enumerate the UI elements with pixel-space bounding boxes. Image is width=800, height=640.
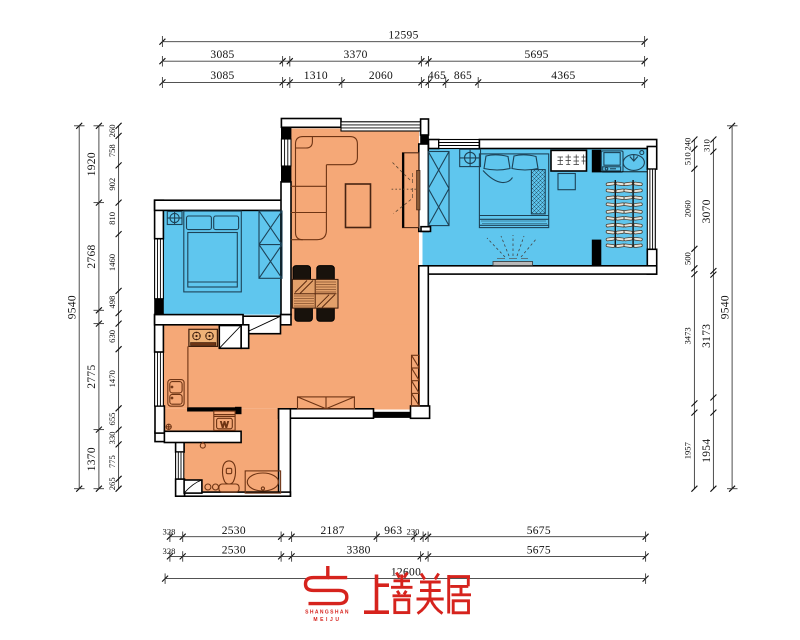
svg-text:810: 810: [107, 212, 117, 225]
svg-text:1957: 1957: [682, 441, 692, 459]
svg-text:2768: 2768: [86, 244, 98, 268]
svg-text:9540: 9540: [67, 295, 79, 319]
svg-text:328: 328: [163, 546, 176, 556]
svg-text:500: 500: [682, 252, 692, 265]
svg-text:775: 775: [107, 455, 117, 468]
svg-text:1310: 1310: [304, 70, 328, 82]
svg-text:2060: 2060: [682, 200, 692, 217]
svg-text:1370: 1370: [86, 447, 98, 471]
svg-text:3473: 3473: [682, 327, 692, 344]
svg-text:902: 902: [107, 178, 117, 191]
svg-text:758: 758: [107, 144, 117, 157]
svg-text:1920: 1920: [86, 152, 98, 176]
svg-text:3085: 3085: [210, 49, 234, 61]
svg-text:9540: 9540: [719, 295, 731, 319]
svg-text:12595: 12595: [388, 30, 418, 42]
svg-text:963: 963: [384, 525, 402, 537]
svg-text:1470: 1470: [107, 370, 117, 387]
svg-text:3380: 3380: [346, 545, 370, 557]
svg-text:330: 330: [107, 432, 117, 445]
svg-text:MEIJU: MEIJU: [313, 617, 341, 623]
svg-text:2060: 2060: [369, 70, 393, 82]
svg-text:3173: 3173: [701, 324, 713, 348]
svg-text:5675: 5675: [527, 525, 551, 537]
svg-text:3085: 3085: [210, 70, 234, 82]
svg-text:2530: 2530: [222, 545, 246, 557]
svg-text:2775: 2775: [86, 364, 98, 388]
svg-text:230: 230: [407, 526, 420, 536]
svg-text:W: W: [220, 419, 228, 429]
svg-text:655: 655: [107, 413, 117, 426]
svg-text:1460: 1460: [107, 254, 117, 271]
svg-text:465: 465: [428, 70, 446, 82]
svg-text:5695: 5695: [524, 49, 548, 61]
svg-text:240: 240: [682, 138, 692, 151]
svg-text:260: 260: [107, 124, 117, 137]
svg-text:630: 630: [107, 330, 117, 343]
svg-text:3070: 3070: [701, 199, 713, 223]
svg-text:510: 510: [682, 152, 692, 165]
svg-text:498: 498: [107, 296, 117, 309]
svg-text:5675: 5675: [527, 545, 551, 557]
svg-text:3370: 3370: [343, 49, 367, 61]
svg-text:1954: 1954: [701, 439, 713, 463]
svg-text:865: 865: [454, 70, 472, 82]
svg-text:4365: 4365: [551, 70, 575, 82]
svg-text:265: 265: [107, 477, 117, 490]
svg-text:SHANGSHAN: SHANGSHAN: [305, 610, 350, 616]
svg-text:2530: 2530: [222, 525, 246, 537]
svg-text:2187: 2187: [320, 525, 344, 537]
svg-text:328: 328: [163, 526, 176, 536]
svg-text:310: 310: [701, 139, 711, 152]
